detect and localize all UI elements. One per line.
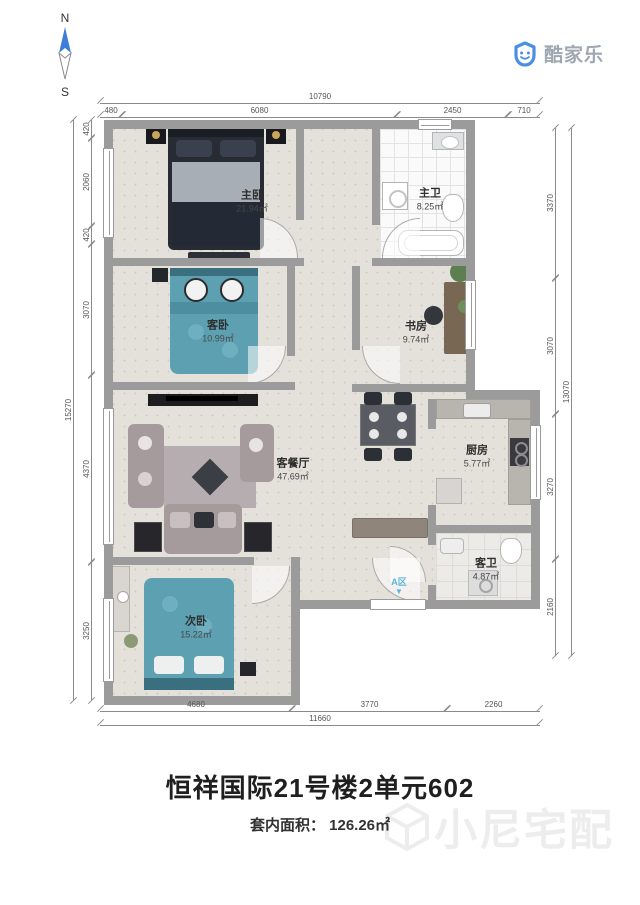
- room-name: 主卫: [417, 188, 444, 202]
- room-name: 书房: [403, 321, 430, 335]
- room-area: 15.22㎡: [180, 629, 212, 640]
- compass-needle-icon: [54, 25, 76, 81]
- plan-title: 恒祥国际21号楼2单元602: [0, 768, 640, 805]
- wall: [291, 557, 300, 705]
- room-area: 21.94㎡: [236, 203, 268, 214]
- dimension-right-total: 13070: [564, 128, 578, 655]
- bathroom-sink: [432, 132, 464, 150]
- dimension-top-segment: 710: [508, 106, 540, 120]
- room-label-second-bedroom: 次卧 15.22㎡: [180, 616, 212, 641]
- wall: [104, 557, 254, 565]
- room-label-guest-bedroom: 客卧 10.99㎡: [202, 320, 234, 345]
- entry-arrow-icon: ▼: [376, 588, 422, 597]
- room-label-master-bath: 主卫 8.25㎡: [417, 188, 444, 213]
- speaker: [134, 522, 162, 552]
- dimension-top-segment: 2450: [397, 106, 508, 120]
- dimension-left-segment: 4370: [84, 375, 98, 562]
- dimension-right-segment: 3070: [548, 278, 562, 414]
- room-area: 8.25㎡: [417, 201, 444, 212]
- wall: [428, 399, 436, 429]
- dimension-bottom-total: 11660: [100, 714, 540, 728]
- sofa-main: [164, 504, 242, 554]
- washing-machine: [382, 182, 408, 210]
- area-summary-label: 套内面积：: [250, 817, 329, 834]
- compass-south-label: S: [53, 86, 77, 99]
- kitchen-counter: [436, 399, 531, 419]
- sofa-left: [128, 424, 164, 508]
- wall: [104, 545, 113, 598]
- dining-chair: [394, 392, 412, 405]
- dimension-right-segment: 2160: [548, 559, 562, 655]
- wall: [466, 120, 475, 280]
- wall: [428, 533, 436, 545]
- wall: [104, 120, 113, 148]
- room-area: 47.69㎡: [277, 471, 310, 482]
- wall: [352, 384, 466, 392]
- dining-chair: [364, 448, 382, 461]
- room-label-living-dining: 客餐厅 47.69㎡: [277, 458, 310, 483]
- wall: [287, 266, 295, 356]
- wall: [104, 258, 304, 266]
- room-area: 9.74㎡: [403, 334, 430, 345]
- wall: [352, 266, 360, 350]
- floor-plan-page: N S 酷家乐: [0, 0, 640, 905]
- kujiale-logo-icon: [512, 41, 538, 67]
- room-name: 客卫: [473, 558, 500, 572]
- toilet: [442, 194, 464, 222]
- dining-chair: [364, 392, 382, 405]
- side-table: [152, 268, 168, 282]
- window: [103, 408, 114, 545]
- dimension-top-segment: 6080: [122, 106, 397, 120]
- dining-chair: [394, 448, 412, 461]
- room-area: 4.87㎡: [473, 571, 500, 582]
- stool: [124, 634, 138, 648]
- wall: [424, 600, 540, 609]
- toilet: [500, 538, 522, 564]
- window: [103, 598, 114, 682]
- wall: [104, 382, 295, 390]
- dimension-bottom-segment: 3770: [292, 700, 447, 714]
- speaker: [244, 522, 272, 552]
- dimension-bottom-segment: 2260: [447, 700, 540, 714]
- window: [103, 148, 114, 238]
- wall: [466, 390, 540, 399]
- room-label-study: 书房 9.74㎡: [403, 321, 430, 346]
- window: [418, 119, 452, 130]
- dimension-left-segment: 3070: [84, 244, 98, 375]
- room-name: 客卧: [202, 320, 234, 334]
- dimension-top-total: 10790: [100, 92, 540, 106]
- area-summary: 套内面积： 126.26㎡: [0, 814, 640, 835]
- room-name: 厨房: [464, 445, 491, 459]
- wall: [428, 525, 531, 533]
- nightstand: [240, 662, 256, 676]
- wall: [531, 500, 540, 609]
- dimension-left-segment: 3250: [84, 562, 98, 700]
- tv-cabinet: [148, 394, 258, 406]
- area-summary-value: 126.26㎡: [329, 817, 390, 834]
- kujiale-logo-text: 酷家乐: [544, 40, 604, 67]
- wall: [372, 120, 380, 225]
- room-label-master-bedroom: 主卧 21.94㎡: [236, 190, 268, 215]
- window: [530, 425, 541, 500]
- wall: [428, 585, 436, 609]
- wall: [296, 120, 304, 220]
- kujiale-logo: 酷家乐: [512, 40, 604, 67]
- room-area: 10.99㎡: [202, 333, 234, 344]
- bathroom-sink: [440, 538, 464, 554]
- entry-zone-label: A区 ▼: [376, 578, 422, 597]
- dresser: [112, 566, 130, 632]
- compass-north-label: N: [53, 12, 77, 25]
- dimension-left-total: 15270: [66, 120, 80, 700]
- stove: [510, 438, 529, 466]
- entry-door: [370, 599, 426, 610]
- dimension-right-segment: 3270: [548, 414, 562, 559]
- compass: N S: [53, 12, 77, 99]
- room-area: 5.77㎡: [464, 458, 491, 469]
- fridge: [436, 478, 462, 504]
- dimension-bottom-segment: 4680: [100, 700, 292, 714]
- sofa-right: [240, 424, 274, 482]
- shoe-cabinet: [352, 518, 428, 538]
- dimension-left-segment: 2060: [84, 138, 98, 226]
- room-name: 主卧: [236, 190, 268, 204]
- room-label-guest-bath: 客卫 4.87㎡: [473, 558, 500, 583]
- wall: [466, 350, 475, 399]
- wall: [372, 258, 466, 266]
- dimension-right-segment: 3370: [548, 128, 562, 278]
- room-label-kitchen: 厨房 5.77㎡: [464, 445, 491, 470]
- dining-table: [360, 404, 416, 446]
- room-name: 次卧: [180, 616, 212, 630]
- window: [465, 280, 476, 350]
- wall: [300, 600, 370, 609]
- room-name: 客餐厅: [277, 458, 310, 472]
